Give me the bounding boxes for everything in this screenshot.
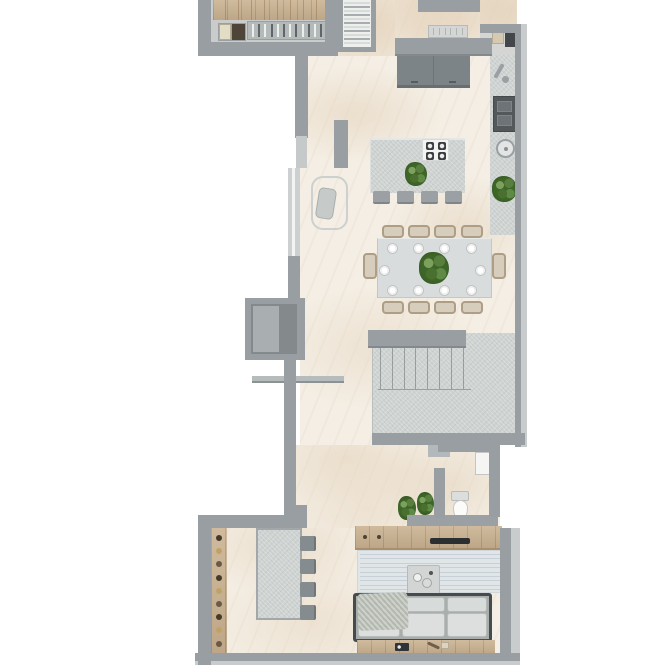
tv-icon xyxy=(430,538,470,544)
wall-wc-right xyxy=(489,449,500,517)
rack-slot xyxy=(456,28,457,35)
floor-top-right xyxy=(480,0,517,24)
plate-icon xyxy=(466,285,477,296)
burner-icon xyxy=(426,152,434,160)
drawer-dark xyxy=(232,24,245,40)
sink-drain-icon xyxy=(504,147,508,151)
plate-icon xyxy=(475,265,486,276)
round-sink-icon xyxy=(496,139,515,158)
hanger-icon xyxy=(283,24,285,37)
shelf-strip xyxy=(211,528,227,654)
sideboard xyxy=(357,640,495,654)
rug-stripe xyxy=(360,554,500,555)
wall-living-right-edge xyxy=(511,528,520,657)
wall-kitchen-top xyxy=(395,38,492,56)
stair-tread xyxy=(344,6,370,8)
hanger-icon xyxy=(271,24,273,37)
pen-icon xyxy=(427,641,440,649)
stair-tread xyxy=(344,30,370,32)
hanger-icon xyxy=(277,24,279,37)
dining-chair xyxy=(408,225,430,238)
dining-chair xyxy=(461,225,483,238)
seat-cushion xyxy=(447,613,487,637)
closet-wood-floor xyxy=(213,0,325,20)
bar-stool xyxy=(397,191,414,204)
dining-chair xyxy=(382,225,404,238)
dining-chair xyxy=(363,253,377,279)
hanger-icon xyxy=(252,24,254,37)
closet-drawers xyxy=(218,23,246,41)
window-left-icon xyxy=(288,168,300,256)
stair-tread xyxy=(344,10,370,12)
wall-bottom-edge xyxy=(195,661,520,665)
shelf-item-icon xyxy=(216,627,222,633)
hanger-icon xyxy=(320,24,322,37)
hanger-icon xyxy=(258,24,260,37)
burner-icon xyxy=(426,142,434,150)
island-stools xyxy=(371,191,465,206)
back-cushion xyxy=(402,597,445,612)
wall-stair-top xyxy=(368,330,466,348)
wall-left-lower xyxy=(284,356,296,520)
back-cushion xyxy=(447,597,487,612)
study-chair xyxy=(300,605,316,620)
drawer-light xyxy=(219,24,231,40)
wall-living-right xyxy=(500,528,511,665)
faucet-base-icon xyxy=(502,76,509,83)
plank-line xyxy=(290,0,291,20)
study-chairs xyxy=(300,530,317,624)
remote-icon xyxy=(395,643,409,651)
niche-slab xyxy=(253,306,279,352)
wall-bottom xyxy=(195,653,520,661)
dining-chair xyxy=(382,301,404,314)
shelf-item-icon xyxy=(216,641,222,647)
plate-icon xyxy=(387,243,398,254)
plank-line xyxy=(264,0,265,20)
coffee-table xyxy=(407,565,440,595)
shelf-item-icon xyxy=(216,614,222,620)
stair-tread xyxy=(344,2,370,4)
shelf-item-icon xyxy=(216,601,222,607)
rack-slot xyxy=(445,28,446,35)
dining-chair xyxy=(434,225,456,238)
rack-slot xyxy=(462,28,463,35)
wc-plant-icon xyxy=(417,492,434,515)
wall-closet-bottom xyxy=(198,42,338,56)
stair-tread xyxy=(344,22,370,24)
hanger-icon xyxy=(314,24,316,37)
cooktop xyxy=(422,139,449,161)
plate-icon xyxy=(387,285,398,296)
wall-shelf xyxy=(252,376,344,383)
burner-icon xyxy=(438,142,446,150)
stair-tread xyxy=(344,26,370,28)
plank-line xyxy=(277,0,278,20)
tv-console xyxy=(355,526,502,550)
dining-chair xyxy=(408,301,430,314)
dice-icon xyxy=(441,642,449,649)
knob-icon xyxy=(377,535,381,539)
hanger-icon xyxy=(264,24,266,37)
rug-stripe xyxy=(360,563,500,564)
wall-right-outer-edge xyxy=(521,24,527,447)
bar-stool xyxy=(373,191,390,204)
dining-group xyxy=(363,225,506,327)
stair-tread xyxy=(344,42,370,44)
entry-door-icon xyxy=(296,136,307,168)
stair-tread xyxy=(344,38,370,40)
knob-icon xyxy=(363,535,367,539)
burner-icon xyxy=(438,152,446,160)
cup-icon xyxy=(422,578,432,588)
rug-stripe xyxy=(360,558,500,559)
hanger-icon xyxy=(295,24,297,37)
teapot-icon xyxy=(429,571,433,575)
study-chair xyxy=(300,559,316,574)
plank-line xyxy=(316,0,317,20)
plate-icon xyxy=(439,243,450,254)
dining-chair xyxy=(492,253,506,279)
counter-plant-icon xyxy=(492,176,517,202)
dining-chair xyxy=(461,301,483,314)
bar-stool xyxy=(421,191,438,204)
kitchen-cabinet xyxy=(397,55,470,88)
stair-tread xyxy=(344,18,370,20)
oven-drawer xyxy=(497,115,512,126)
cabinet-handle xyxy=(411,81,418,83)
shelf-item-icon xyxy=(216,548,222,554)
cabinet-handle xyxy=(449,81,456,83)
stair-tread xyxy=(344,34,370,36)
sofa-throw xyxy=(357,592,408,631)
plate-icon xyxy=(379,265,390,276)
wall-wc-left xyxy=(434,468,445,518)
stair-landing-edge xyxy=(378,389,471,390)
plate-icon xyxy=(466,243,477,254)
plate-icon xyxy=(413,285,424,296)
hanger-icon xyxy=(308,24,310,37)
wall-stub xyxy=(334,120,348,168)
study-desk xyxy=(256,528,302,620)
oven xyxy=(493,96,516,132)
closet-rail xyxy=(247,21,327,40)
shelf-item-icon xyxy=(216,588,222,594)
wall-study-left xyxy=(198,515,211,665)
kitchen-top-counter xyxy=(418,0,480,12)
plate-icon xyxy=(439,285,450,296)
cabinet-seam xyxy=(433,55,434,85)
bar-stool xyxy=(445,191,462,204)
plank-line xyxy=(251,0,252,20)
plank-line xyxy=(303,0,304,20)
rack-slot xyxy=(439,28,440,35)
island-plant-icon xyxy=(405,162,427,186)
top-stairs xyxy=(338,0,376,52)
cup-icon xyxy=(413,573,422,582)
wall-entry xyxy=(295,46,308,138)
rack-slot xyxy=(450,28,451,35)
floor-plan xyxy=(0,0,665,665)
dining-chair xyxy=(434,301,456,314)
plate-icon xyxy=(413,243,424,254)
shelf-item-icon xyxy=(216,535,222,541)
hanger-icon xyxy=(289,24,291,37)
stair-tread xyxy=(344,14,370,16)
hanger-icon xyxy=(302,24,304,37)
shelf-item-icon xyxy=(216,561,222,567)
dining-plant-icon xyxy=(419,252,449,284)
dish-rack xyxy=(428,25,468,38)
plank-line xyxy=(225,0,226,20)
wall-closet-right xyxy=(325,0,338,46)
shelf-item-icon xyxy=(216,575,222,581)
oven-drawer xyxy=(497,101,512,112)
plank-line xyxy=(238,0,239,20)
study-chair xyxy=(300,536,316,551)
study-chair xyxy=(300,582,316,597)
rack-slot xyxy=(433,28,434,35)
wall-left-mid xyxy=(288,254,300,302)
